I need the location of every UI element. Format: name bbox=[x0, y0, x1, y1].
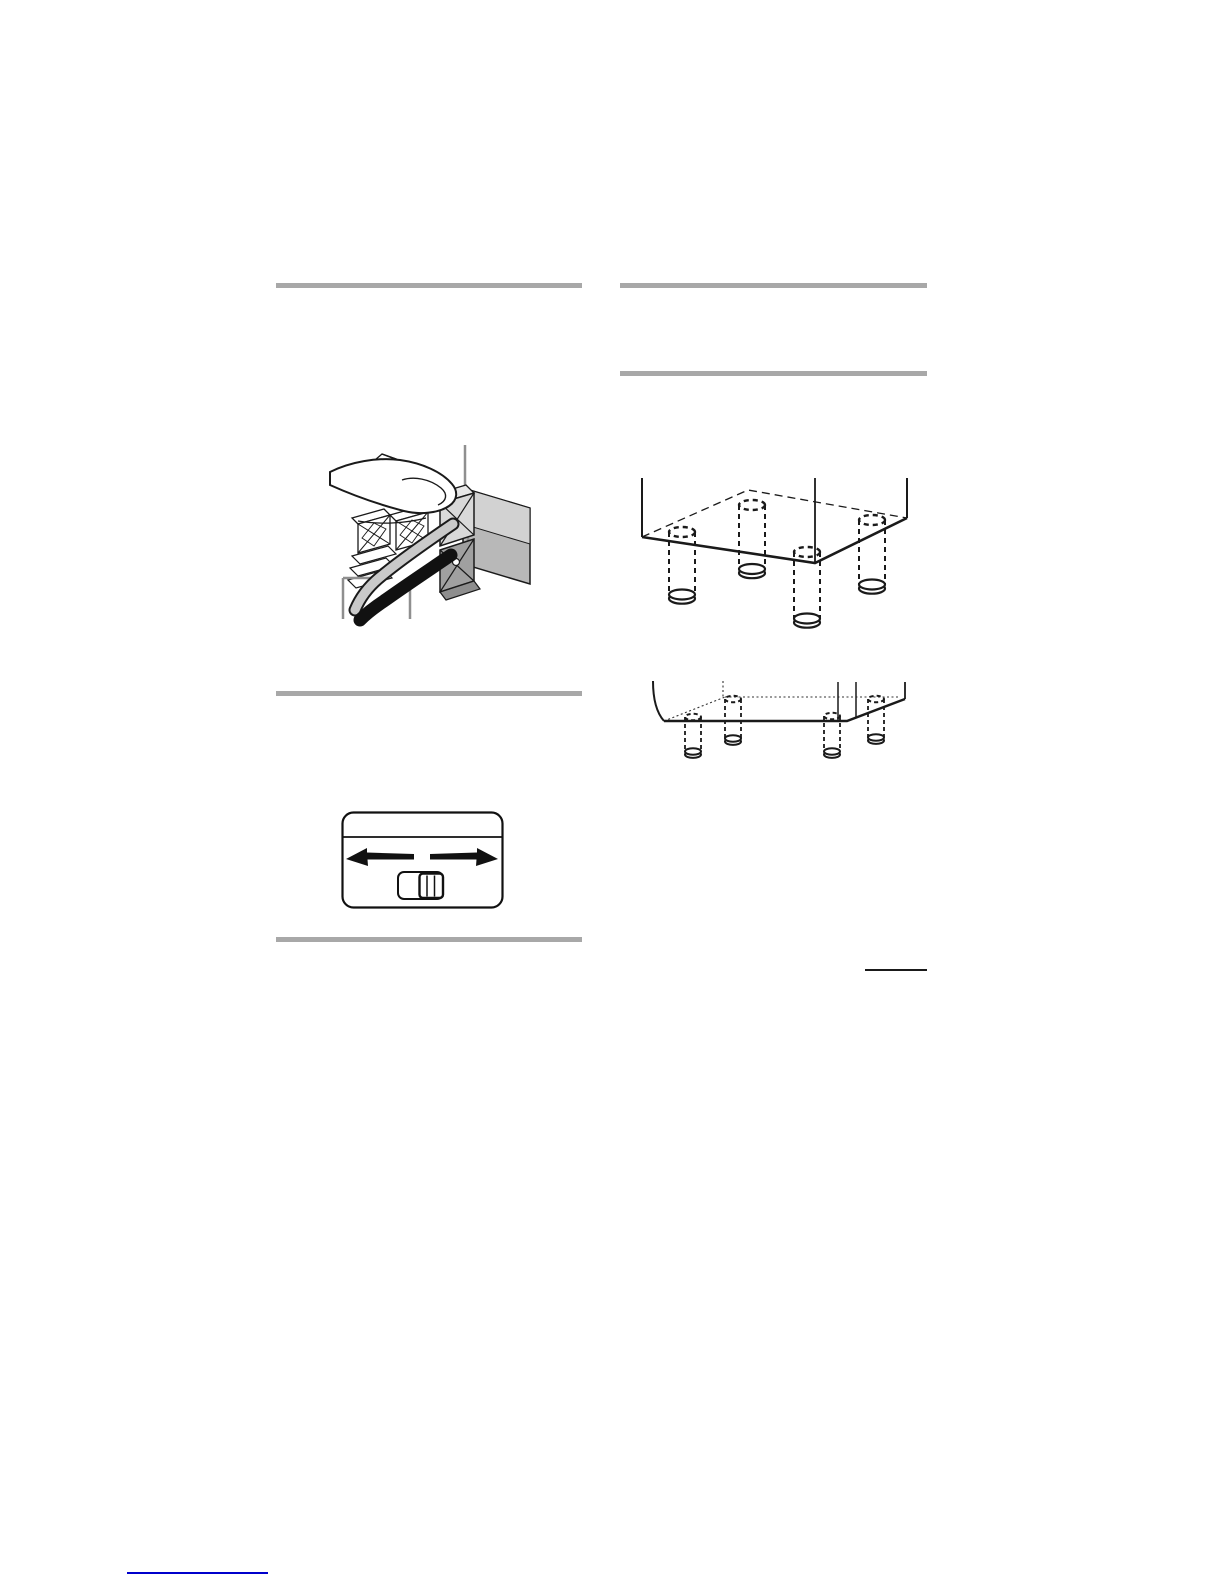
small-foot-4 bbox=[868, 696, 884, 744]
speaker-bottom-large-illustration bbox=[628, 473, 918, 633]
figure-terminal bbox=[322, 438, 532, 628]
slider-switch-illustration bbox=[341, 811, 504, 909]
speaker-bottom-small-illustration bbox=[645, 672, 910, 767]
foot-front bbox=[794, 547, 820, 628]
terminal-unit-bottom-right bbox=[440, 539, 480, 600]
section-rule-left-3 bbox=[276, 937, 582, 942]
slider-knob[interactable] bbox=[420, 874, 444, 899]
foot-back-left bbox=[669, 527, 695, 604]
foot-back-middle bbox=[739, 500, 765, 578]
footer-link-underline[interactable] bbox=[127, 1572, 268, 1574]
section-rule-left-1 bbox=[276, 283, 582, 288]
foot-right bbox=[859, 515, 885, 594]
section-rule-left-2 bbox=[276, 691, 582, 696]
footnote-rule bbox=[865, 969, 927, 971]
section-rule-right-2 bbox=[620, 371, 927, 376]
figure-bottom-large bbox=[628, 473, 918, 633]
speaker-terminal-illustration bbox=[322, 438, 532, 628]
section-rule-right-1 bbox=[620, 283, 927, 288]
manual-page bbox=[0, 0, 1225, 1585]
cabinet-outline bbox=[642, 478, 907, 563]
figure-switch bbox=[341, 811, 504, 909]
terminal-unit-left-a bbox=[352, 509, 390, 553]
figure-bottom-small bbox=[645, 672, 910, 767]
